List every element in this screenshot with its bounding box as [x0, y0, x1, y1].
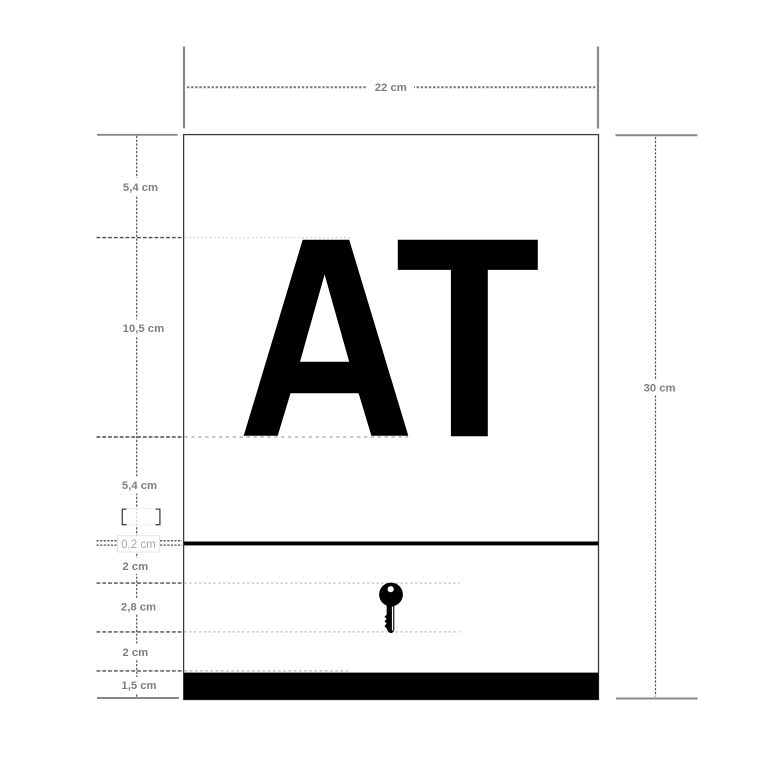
svg-text:1,5 cm: 1,5 cm	[121, 680, 156, 692]
svg-text:2,8 cm: 2,8 cm	[121, 602, 156, 614]
svg-text:30 cm: 30 cm	[644, 382, 676, 394]
svg-text:2 cm: 2 cm	[122, 647, 148, 659]
svg-text:0,2 cm: 0,2 cm	[121, 539, 156, 551]
svg-text:22 cm: 22 cm	[375, 82, 407, 94]
svg-text:5,4 cm: 5,4 cm	[122, 480, 157, 492]
svg-text:5,4 cm: 5,4 cm	[123, 182, 158, 194]
svg-text:2 cm: 2 cm	[122, 561, 148, 573]
svg-text:10,5 cm: 10,5 cm	[123, 323, 164, 335]
